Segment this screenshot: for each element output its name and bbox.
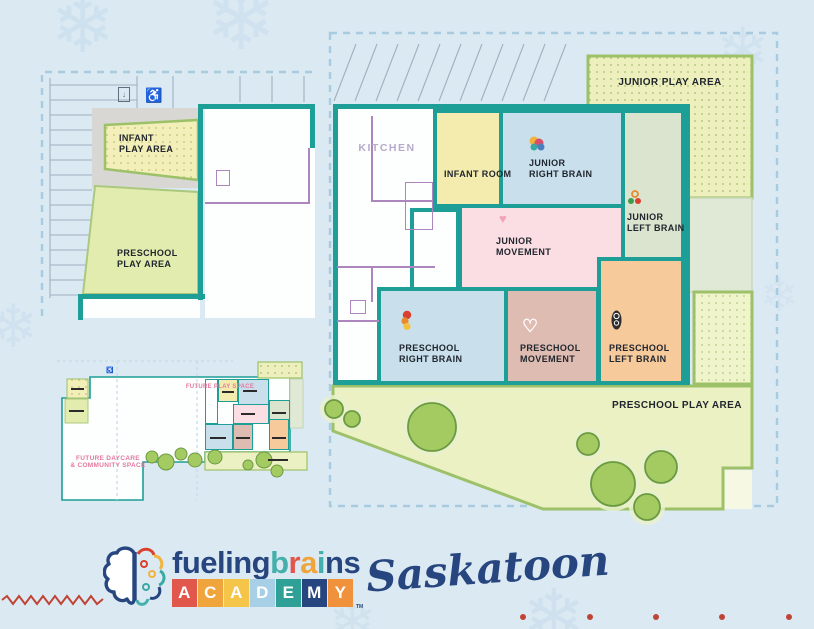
dotted-yard-zone xyxy=(694,292,752,384)
junior-left-brain-room xyxy=(621,109,685,261)
parking-stalls-main xyxy=(334,44,566,101)
left-building-purple-wall xyxy=(205,202,310,204)
paint-splash-icon xyxy=(527,136,547,153)
corridor-wall xyxy=(371,266,373,302)
academy-block: C xyxy=(198,579,223,607)
infant-play-area-label: INFANT PLAY AREA xyxy=(119,133,173,155)
preschool-play-area-label-left: PRESCHOOL PLAY AREA xyxy=(117,248,178,270)
heart-outline-icon: ♡ xyxy=(522,317,538,335)
future-daycare-label: FUTURE DAYCARE & COMMUNITY SPACE xyxy=(70,455,146,469)
academy-block: Y xyxy=(328,579,353,607)
future-play-space-label: FUTURE PLAY SPACE xyxy=(150,384,290,390)
heart-icon: ♥ xyxy=(499,212,507,225)
junior-left-brain-label: JUNIOR LEFT BRAIN xyxy=(627,212,685,234)
right-brain-icon xyxy=(400,310,413,332)
sign-icon: ↓ xyxy=(118,87,130,102)
left-building-right-wall xyxy=(310,104,315,148)
kitchen-label: KITCHEN xyxy=(352,142,422,155)
stairs xyxy=(350,300,366,314)
junior-play-area-label: JUNIOR PLAY AREA xyxy=(590,77,750,89)
mini-room-label xyxy=(236,437,250,439)
preschool-movement-label: PRESCHOOL MOVEMENT xyxy=(520,343,581,365)
left-building-bottom-wall xyxy=(78,294,205,299)
preschool-play-area-zone-left xyxy=(83,186,198,294)
brand-letter: n xyxy=(325,545,343,580)
left-building-bottom-left-wall xyxy=(78,294,83,320)
left-building-left-wall xyxy=(198,104,203,300)
shapes-icon xyxy=(626,190,644,206)
academy-block: A xyxy=(172,579,197,607)
academy-block: M xyxy=(302,579,327,607)
infant-room xyxy=(433,109,503,208)
brain-logo xyxy=(103,543,169,615)
mini-preschool-left-brain xyxy=(269,419,289,450)
preschool-movement-room xyxy=(504,287,600,385)
brand-letter: s xyxy=(343,545,360,580)
academy-block: D xyxy=(250,579,275,607)
dot-accents xyxy=(520,614,792,620)
left-brain-icon xyxy=(610,309,623,331)
left-building-purple-wall xyxy=(308,148,310,203)
corridor-wall xyxy=(337,320,379,322)
mini-room-label xyxy=(210,437,226,439)
mini-room-label xyxy=(69,410,84,412)
mini-room-label xyxy=(71,388,84,390)
brand-wordmark: fuelingbrains xyxy=(172,545,360,581)
trademark-label: TM xyxy=(356,604,363,610)
preschool-left-brain-label: PRESCHOOL LEFT BRAIN xyxy=(609,343,670,365)
junior-movement-label: JUNIOR MOVEMENT xyxy=(496,236,551,258)
preschool-right-brain-room xyxy=(377,287,508,385)
left-building-lower-strip xyxy=(83,299,200,318)
mini-room-label xyxy=(243,390,257,392)
zigzag-accent xyxy=(2,596,103,604)
kitchen-wall xyxy=(371,116,373,202)
mini-room-label xyxy=(222,391,234,393)
left-building-interior xyxy=(205,109,315,318)
mini-room-label xyxy=(272,412,286,414)
academy-block: A xyxy=(224,579,249,607)
mini-side-yard xyxy=(290,379,303,428)
left-building-top-wall xyxy=(198,104,315,109)
left-building-closet xyxy=(216,170,230,186)
accessible-parking-icon: ♿ xyxy=(145,88,162,102)
mini-room-label xyxy=(272,437,286,439)
infant-room-label: INFANT ROOM xyxy=(444,169,511,180)
preschool-play-area-label-main: PRESCHOOL PLAY AREA xyxy=(612,400,742,412)
side-yard-zone xyxy=(688,198,752,292)
brand-letter: i xyxy=(317,545,325,580)
yard-corner xyxy=(723,470,752,509)
academy-blocks: A C A D E M Y xyxy=(172,579,354,607)
floor-plan-page: ❄ ❄ ❄ ❄ ❄ ❄ ❄ ❄ xyxy=(0,0,814,629)
preschool-right-brain-label: PRESCHOOL RIGHT BRAIN xyxy=(399,343,462,365)
mini-room-label xyxy=(268,459,288,461)
mini-accessible-icon: ♿ xyxy=(106,368,113,374)
kitchen-counter xyxy=(405,182,433,230)
mini-junior-play-area xyxy=(258,362,302,378)
brand-letter: r xyxy=(289,545,301,580)
mini-room-label xyxy=(241,413,255,415)
academy-block: E xyxy=(276,579,301,607)
brand-letter: a xyxy=(300,545,317,580)
brand-letter: b xyxy=(270,545,288,580)
kitchen-wall xyxy=(337,266,435,268)
junior-right-brain-label: JUNIOR RIGHT BRAIN xyxy=(529,158,592,180)
brand-word-fueling: fueling xyxy=(172,545,270,580)
mini-junior-right-brain xyxy=(238,379,269,405)
